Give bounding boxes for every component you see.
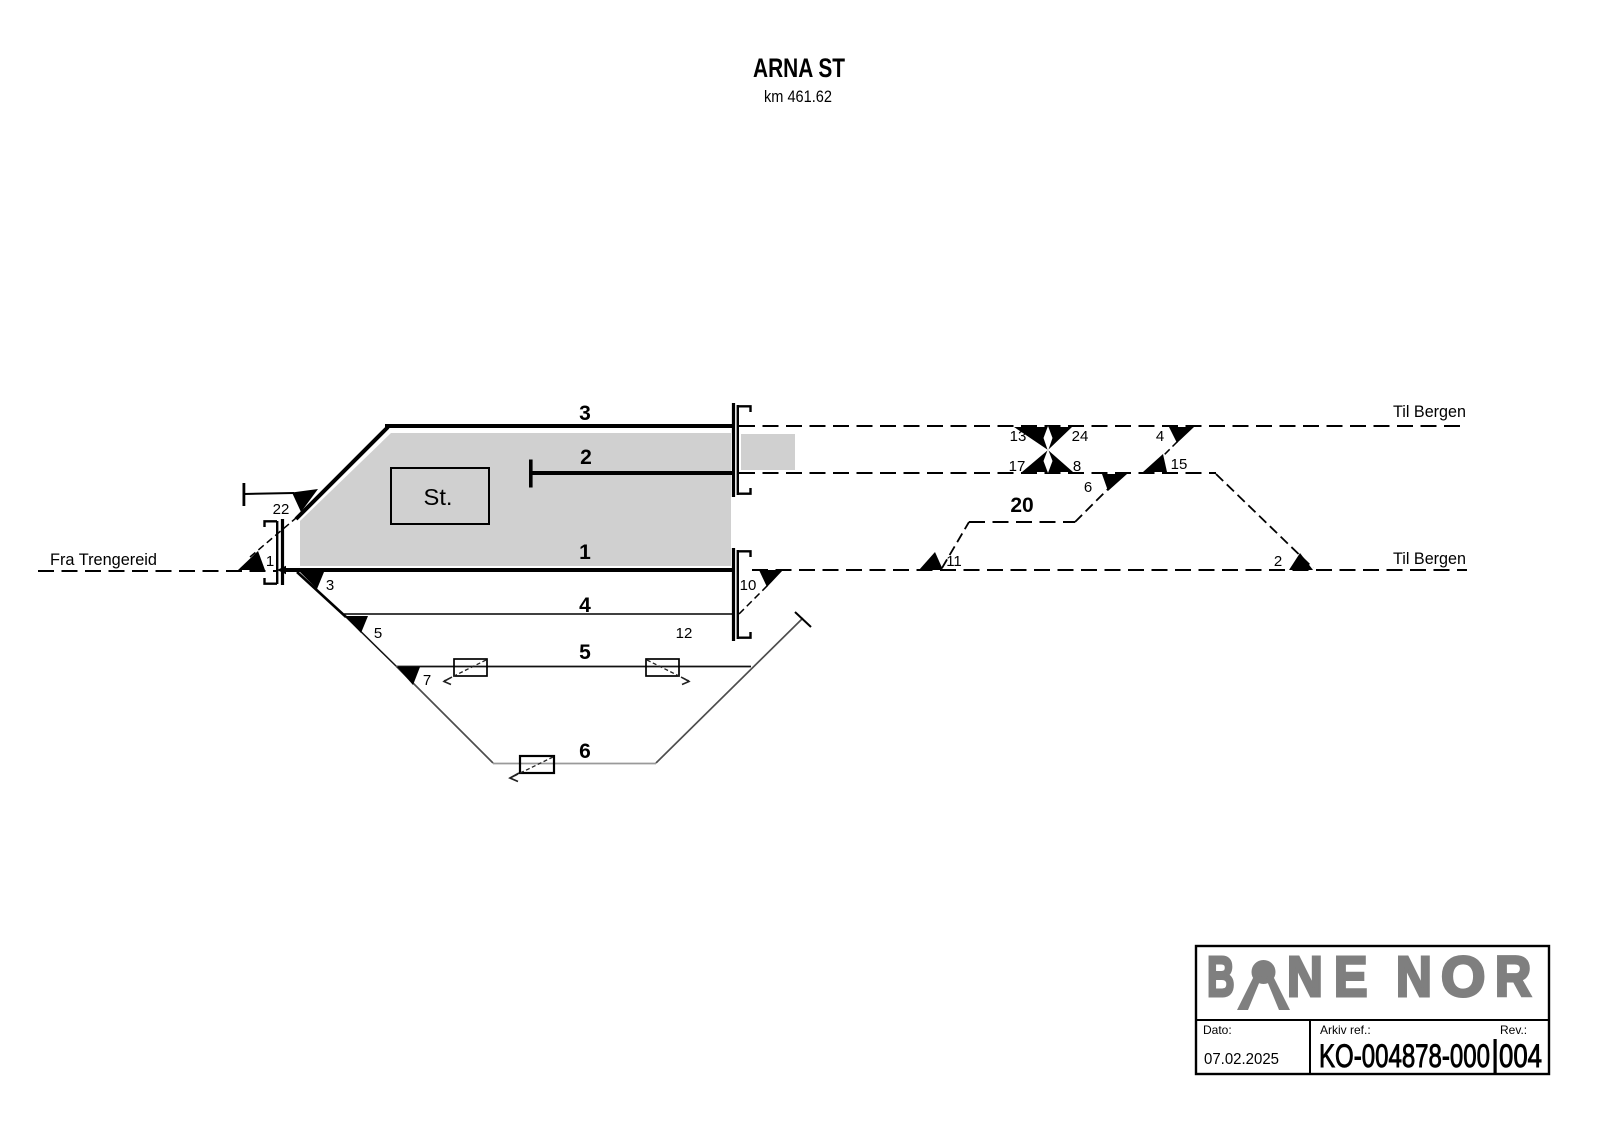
svg-text:12: 12	[676, 625, 693, 642]
svg-text:3: 3	[326, 577, 334, 594]
svg-text:Fra Trengereid: Fra Trengereid	[50, 551, 157, 569]
svg-text:km 461.62: km 461.62	[764, 88, 832, 106]
svg-text:2: 2	[1274, 553, 1282, 570]
svg-text:5: 5	[579, 641, 591, 664]
svg-text:Dato:: Dato:	[1203, 1023, 1232, 1037]
svg-text:22: 22	[273, 501, 290, 518]
svg-text:B: B	[1207, 945, 1235, 1008]
svg-text:8: 8	[1073, 458, 1081, 475]
svg-text:Til Bergen: Til Bergen	[1393, 403, 1466, 421]
svg-text:R: R	[1495, 945, 1531, 1009]
svg-text:1: 1	[266, 553, 274, 570]
svg-text:004: 004	[1499, 1038, 1542, 1074]
svg-text:1: 1	[579, 541, 591, 564]
svg-text:4: 4	[1156, 428, 1164, 445]
svg-text:N: N	[1396, 946, 1432, 1009]
svg-text:4: 4	[579, 594, 591, 617]
svg-text:O: O	[1441, 945, 1485, 1009]
svg-text:13: 13	[1010, 428, 1027, 445]
svg-text:KO-004878-000: KO-004878-000	[1319, 1038, 1490, 1074]
svg-text:07.02.2025: 07.02.2025	[1204, 1051, 1279, 1068]
svg-text:2: 2	[580, 446, 592, 469]
svg-text:20: 20	[1010, 494, 1033, 517]
svg-text:Rev.:: Rev.:	[1500, 1023, 1527, 1037]
svg-text:Til Bergen: Til Bergen	[1393, 550, 1466, 568]
svg-text:24: 24	[1072, 428, 1089, 445]
svg-text:17: 17	[1009, 458, 1026, 475]
svg-text:N: N	[1287, 946, 1323, 1009]
svg-text:6: 6	[579, 740, 591, 763]
svg-text:7: 7	[423, 672, 431, 689]
svg-text:10: 10	[740, 577, 757, 594]
svg-text:3: 3	[579, 402, 591, 425]
svg-text:6: 6	[1084, 479, 1092, 496]
svg-text:E: E	[1334, 945, 1367, 1009]
svg-text:St.: St.	[424, 484, 453, 510]
svg-text:ARNA ST: ARNA ST	[753, 53, 845, 83]
svg-text:15: 15	[1171, 456, 1188, 473]
svg-text:11: 11	[946, 553, 962, 570]
svg-text:Arkiv ref.:: Arkiv ref.:	[1320, 1023, 1371, 1037]
svg-text:5: 5	[374, 625, 382, 642]
